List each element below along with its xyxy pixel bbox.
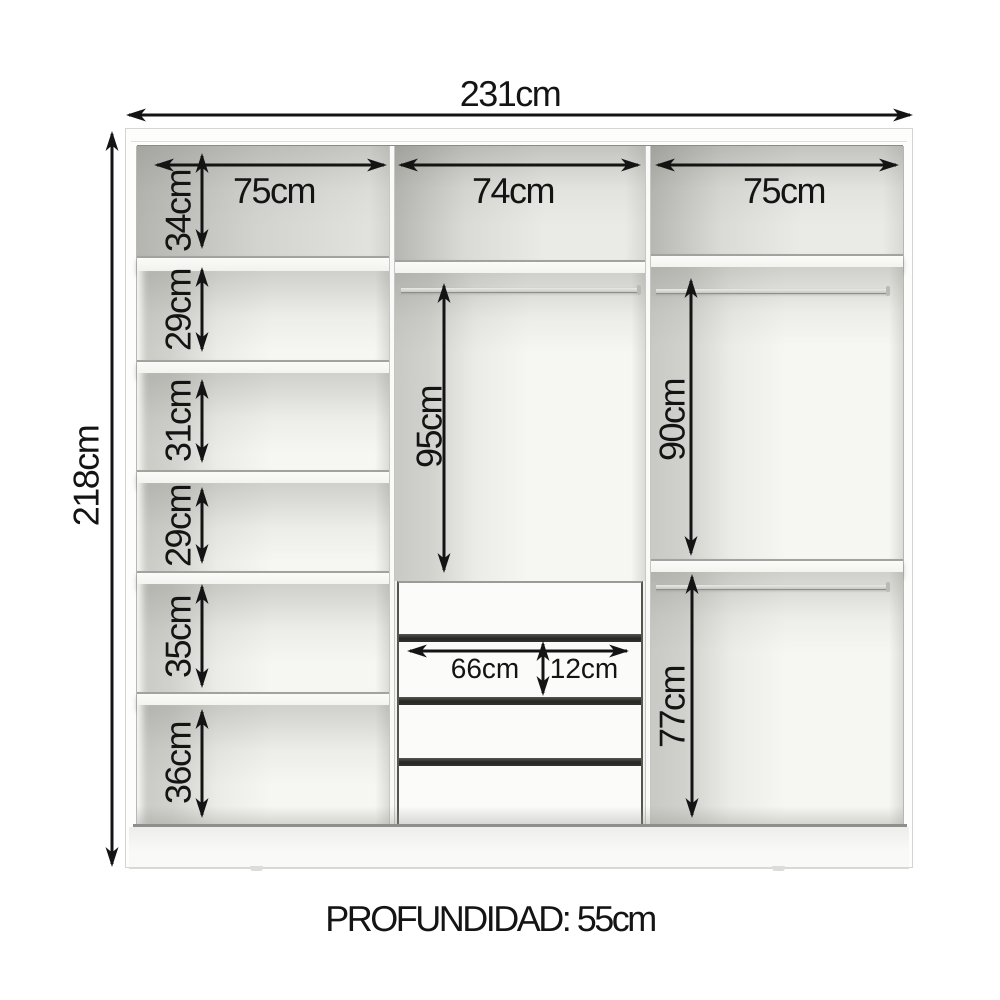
svg-text:95cm: 95cm [409, 386, 450, 468]
svg-text:74cm: 74cm [472, 170, 554, 211]
svg-text:75cm: 75cm [743, 170, 825, 211]
svg-text:29cm: 29cm [158, 269, 199, 351]
svg-text:34cm: 34cm [158, 170, 199, 252]
svg-text:231cm: 231cm [460, 73, 561, 114]
svg-text:31cm: 31cm [158, 380, 199, 462]
svg-text:PROFUNDIDAD: 55cm: PROFUNDIDAD: 55cm [325, 898, 655, 939]
svg-text:29cm: 29cm [158, 485, 199, 567]
svg-text:36cm: 36cm [158, 722, 199, 804]
svg-text:66cm: 66cm [451, 653, 519, 684]
svg-text:77cm: 77cm [652, 666, 693, 748]
svg-text:75cm: 75cm [233, 170, 315, 211]
svg-text:218cm: 218cm [66, 426, 107, 527]
svg-text:12cm: 12cm [550, 653, 618, 684]
svg-text:90cm: 90cm [652, 379, 693, 461]
svg-text:35cm: 35cm [158, 596, 199, 678]
